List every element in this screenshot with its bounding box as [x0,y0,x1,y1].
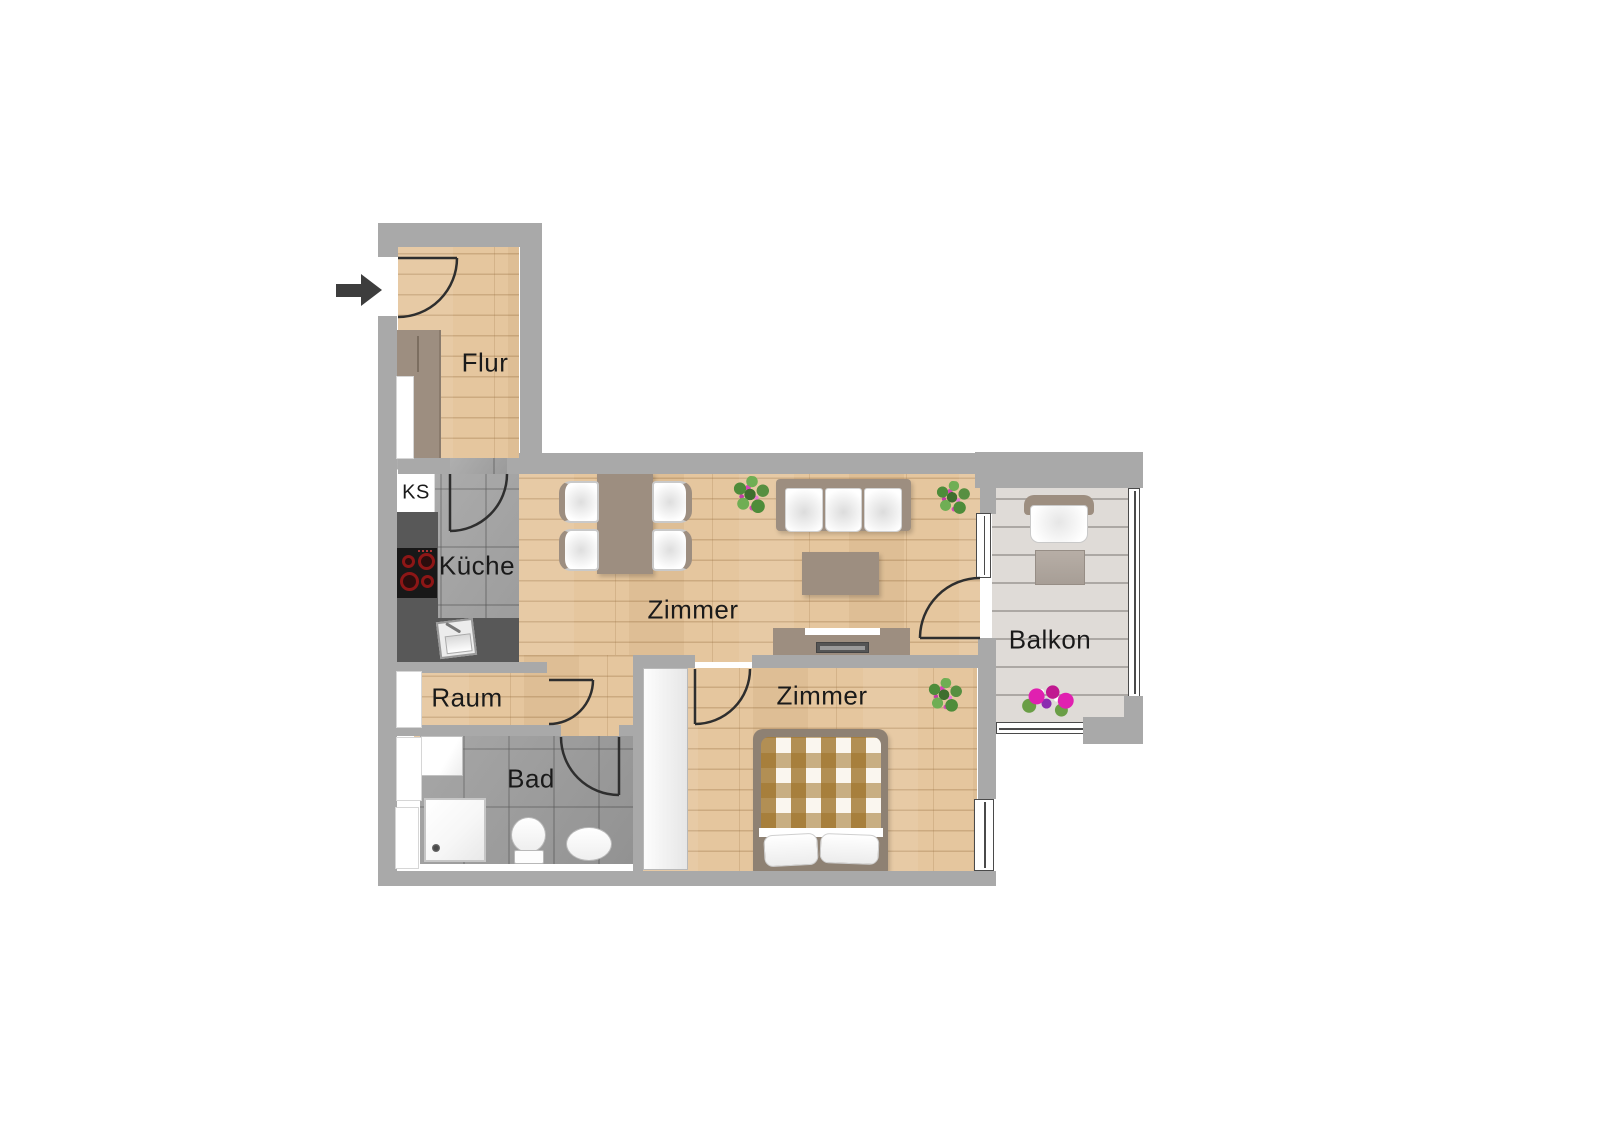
entry-arrow-head [361,274,382,306]
label-kueche: Küche [439,551,515,582]
bad-door-arc [561,737,619,795]
kitchen-door-arc [450,474,507,531]
balcony-door-arc [920,578,980,638]
label-balkon: Balkon [1009,625,1092,656]
bedroom-door-arc [695,669,750,724]
label-ks: KS [402,482,430,505]
label-flur: Flur [462,348,509,379]
entry-door-arc [398,258,457,317]
door-swing-overlay [0,0,1600,1131]
label-raum: Raum [431,683,502,714]
raum-door-arc [549,680,593,724]
label-bad: Bad [507,764,555,795]
label-living: Zimmer [647,595,738,626]
floor-plan: Flur KS Küche Zimmer Raum Bad Zimmer Bal… [0,0,1600,1131]
entry-arrow-icon [336,284,363,297]
label-bedroom: Zimmer [776,681,867,712]
